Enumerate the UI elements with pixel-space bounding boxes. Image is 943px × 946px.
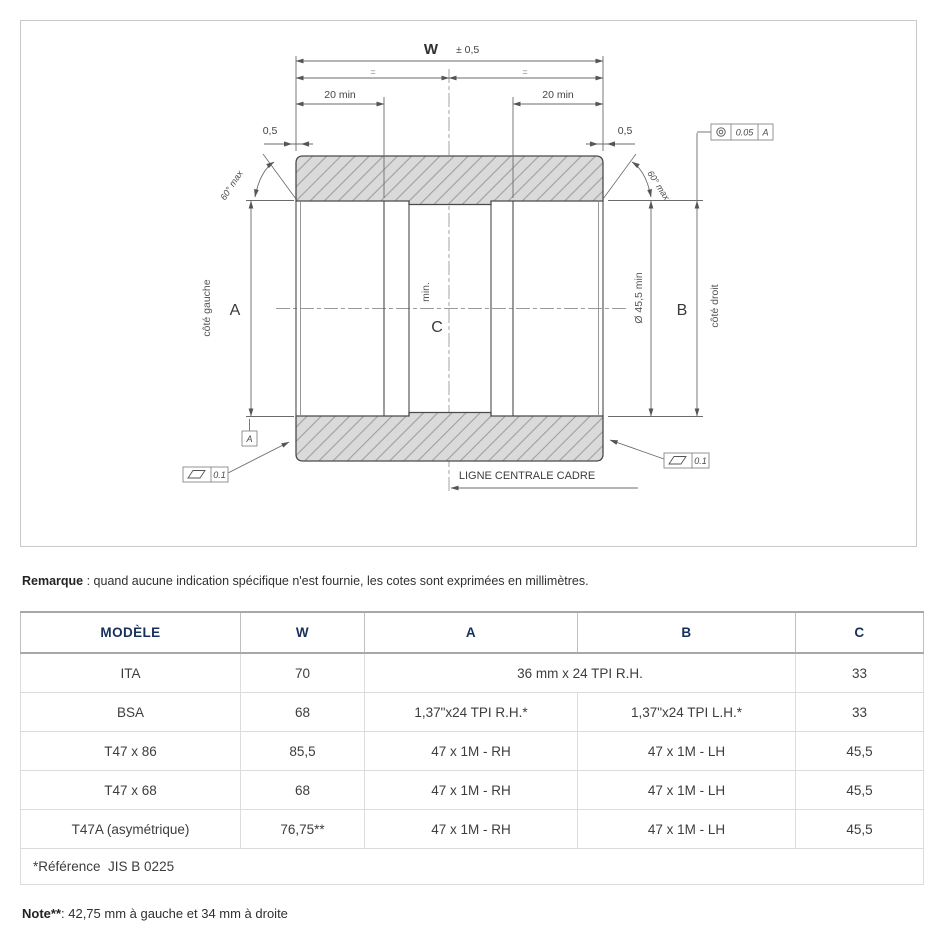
centerline-label: LIGNE CENTRALE CADRE (459, 470, 595, 482)
cell-w: 68 (241, 771, 365, 810)
dim-05-arrows (284, 141, 615, 146)
page: { "colors": { "header_text": "#16325c", … (0, 0, 943, 946)
remark-text: Remarque : quand aucune indication spéci… (22, 574, 922, 588)
cell-c: 45,5 (796, 810, 924, 849)
table-row-t47x86: T47 x 86 85,5 47 x 1M - RH 47 x 1M - LH … (21, 732, 924, 771)
cell-b: 47 x 1M - LH (578, 732, 796, 771)
remark-label: Remarque (22, 574, 83, 588)
cell-a: 47 x 1M - RH (365, 810, 578, 849)
dim-20min-left-label: 20 min (324, 89, 356, 101)
cell-a: 47 x 1M - RH (365, 771, 578, 810)
runout-value: 0.05 (736, 128, 755, 138)
col-header-b: B (578, 612, 796, 653)
cell-model: T47 x 68 (21, 771, 241, 810)
cell-ab-merged: 36 mm x 24 TPI R.H. (365, 653, 796, 693)
dia-min-label: Ø 45,5 min (633, 272, 645, 324)
cell-model: BSA (21, 693, 241, 732)
cell-w: 70 (241, 653, 365, 693)
technical-drawing: W ± 0,5 = = 20 min 20 min 0,5 0,5 60° ma… (21, 21, 916, 546)
angle-arc-left (255, 162, 274, 197)
spec-table: MODÈLE W A B C ITA 70 36 mm x 24 TPI R.H… (20, 611, 924, 885)
dim-20min-right-label: 20 min (542, 89, 574, 101)
table-row-t47x68: T47 x 68 68 47 x 1M - RH 47 x 1M - LH 45… (21, 771, 924, 810)
cell-a: 1,37"x24 TPI R.H.* (365, 693, 578, 732)
drawing-frame: W ± 0,5 = = 20 min 20 min 0,5 0,5 60° ma… (20, 20, 917, 547)
cell-c: 33 (796, 653, 924, 693)
dim-05-right-label: 0,5 (618, 125, 633, 137)
angle-left-label: 60° max (218, 168, 245, 202)
cell-w: 68 (241, 693, 365, 732)
cell-c: 33 (796, 693, 924, 732)
dim-05-left-label: 0,5 (263, 125, 278, 137)
shell-top-section (296, 156, 603, 205)
chamfer-ref-left (263, 154, 296, 199)
col-header-a: A (365, 612, 578, 653)
cell-a: 47 x 1M - RH (365, 732, 578, 771)
remark-body: : quand aucune indication spécifique n'e… (83, 574, 588, 588)
shell-bottom-section (296, 413, 603, 462)
table-row-bsa: BSA 68 1,37"x24 TPI R.H.* 1,37"x24 TPI L… (21, 693, 924, 732)
label-b: B (677, 302, 688, 319)
cell-b: 47 x 1M - LH (578, 810, 796, 849)
note-text: Note**: 42,75 mm à gauche et 34 mm à dro… (22, 906, 922, 921)
flatness-right-value: 0.1 (694, 456, 707, 466)
table-footer-row: *Référence JIS B 0225 (21, 849, 924, 885)
chamfer-ref-right (603, 154, 636, 199)
cell-c: 45,5 (796, 771, 924, 810)
table-header-row: MODÈLE W A B C (21, 612, 924, 653)
datum-label: A (245, 434, 252, 444)
flatness-leader-left (228, 442, 289, 473)
cell-w: 76,75** (241, 810, 365, 849)
side-right-label: côté droit (709, 284, 721, 327)
angle-arc-right (632, 162, 651, 197)
label-c: C (431, 319, 443, 336)
dim-w-label: W (424, 41, 439, 58)
dim-w-tolerance: ± 0,5 (456, 44, 479, 56)
equal-mark-left: = (370, 67, 375, 77)
cell-b: 1,37"x24 TPI L.H.* (578, 693, 796, 732)
col-header-c: C (796, 612, 924, 653)
cell-model: ITA (21, 653, 241, 693)
side-left-label: côté gauche (201, 279, 213, 336)
note-body: : 42,75 mm à gauche et 34 mm à droite (61, 906, 288, 921)
cell-c: 45,5 (796, 732, 924, 771)
cell-model: T47 x 86 (21, 732, 241, 771)
col-header-w: W (241, 612, 365, 653)
cell-w: 85,5 (241, 732, 365, 771)
cell-b: 47 x 1M - LH (578, 771, 796, 810)
flatness-leader-right (610, 440, 664, 459)
equal-mark-right: = (522, 67, 527, 77)
angle-right-label: 60° max (645, 169, 672, 203)
table-row-ita: ITA 70 36 mm x 24 TPI R.H. 33 (21, 653, 924, 693)
cell-model: T47A (asymétrique) (21, 810, 241, 849)
label-a: A (230, 302, 241, 319)
label-c-min: min. (420, 282, 432, 302)
table-footer-reference: *Référence JIS B 0225 (21, 849, 924, 885)
runout-datum: A (761, 128, 768, 138)
col-header-modele: MODÈLE (21, 612, 241, 653)
flatness-left-value: 0.1 (213, 470, 226, 480)
table-row-t47a: T47A (asymétrique) 76,75** 47 x 1M - RH … (21, 810, 924, 849)
note-label: Note** (22, 906, 61, 921)
